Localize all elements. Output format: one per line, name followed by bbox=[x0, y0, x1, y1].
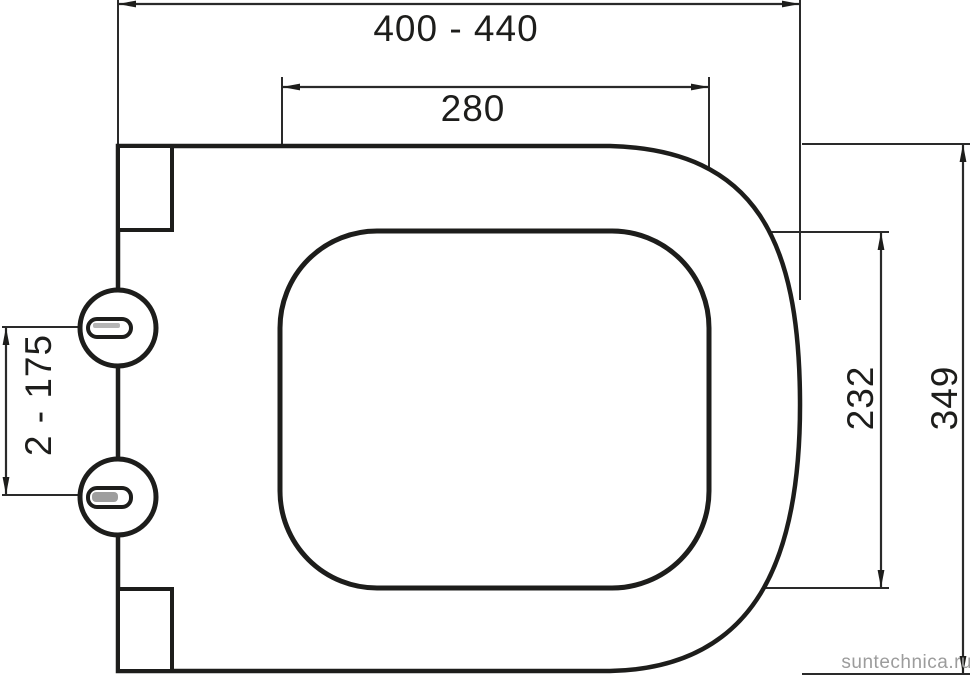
arrow-overall-depth-top bbox=[960, 144, 967, 162]
mounting-tab-bottom bbox=[118, 589, 172, 671]
dim-label-overall-depth: 349 bbox=[926, 338, 964, 458]
mounting-tab-top bbox=[118, 146, 172, 230]
dim-label-overall-width: 400 - 440 bbox=[336, 10, 576, 48]
hinge-slot-top-fill bbox=[93, 323, 120, 328]
dim-label-hinge-distance: 2 - 175 bbox=[20, 315, 58, 475]
arrow-overall-width-left bbox=[118, 1, 136, 8]
dim-label-opening-depth: 232 bbox=[842, 338, 880, 458]
arrow-hinge-bottom bbox=[3, 477, 10, 495]
watermark-text: suntechnica.ru bbox=[841, 652, 970, 674]
arrow-opening-depth-top bbox=[878, 232, 885, 250]
seat-opening-ring bbox=[280, 231, 709, 588]
arrow-opening-depth-bottom bbox=[878, 570, 885, 588]
arrow-overall-width-right bbox=[782, 1, 800, 8]
arrow-opening-width-left bbox=[282, 84, 300, 91]
hinge-slot-bottom-fill bbox=[92, 492, 118, 502]
technical-drawing-canvas: 400 - 440 280 232 349 2 - 175 suntechnic… bbox=[0, 0, 970, 680]
dim-label-opening-width: 280 bbox=[413, 90, 533, 128]
arrow-opening-width-right bbox=[691, 84, 709, 91]
arrow-hinge-top bbox=[3, 327, 10, 345]
